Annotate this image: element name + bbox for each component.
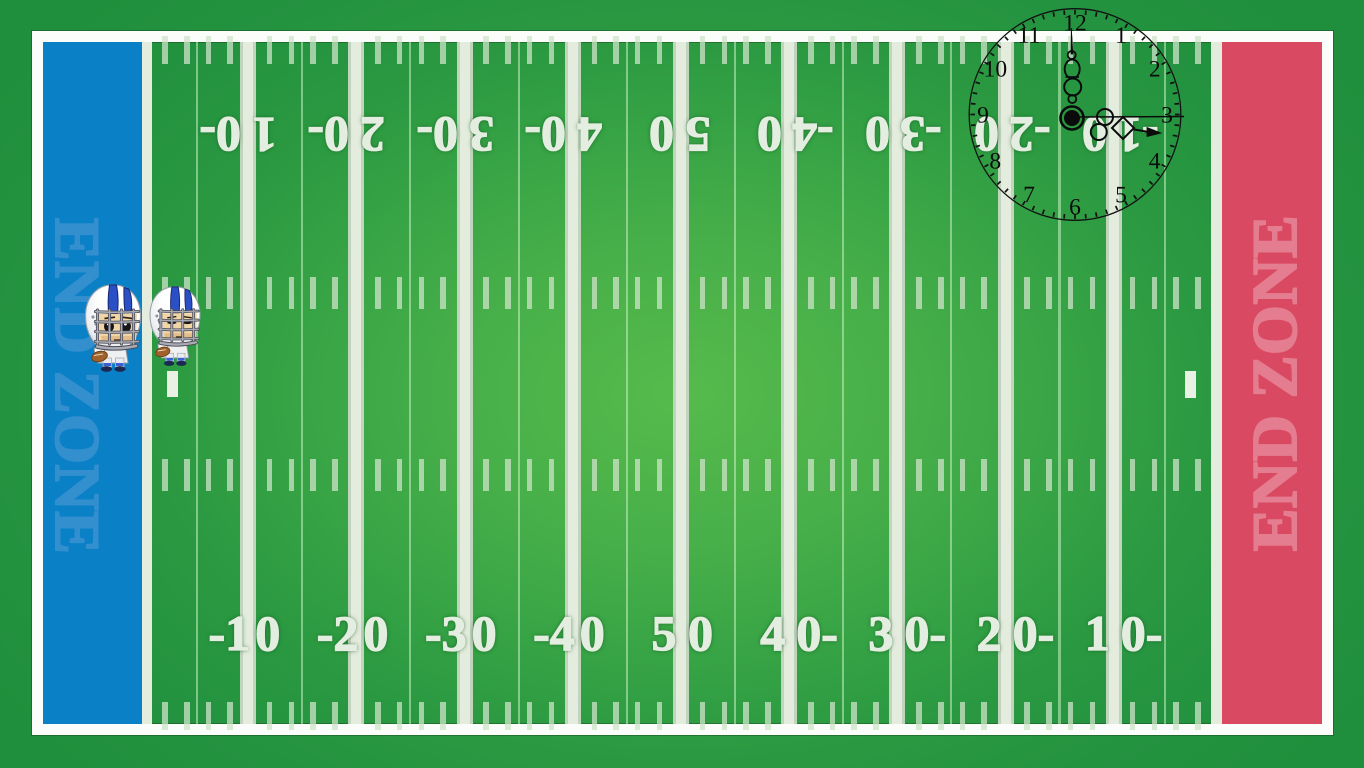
svg-text:10: 10 (984, 56, 1008, 82)
svg-text:4: 4 (1149, 149, 1161, 175)
svg-text:2: 2 (1149, 57, 1161, 83)
svg-text:7: 7 (1023, 182, 1035, 208)
svg-text:3: 3 (1161, 103, 1173, 129)
svg-text:5: 5 (1115, 182, 1127, 208)
svg-text:8: 8 (989, 148, 1001, 174)
svg-text:12: 12 (1063, 10, 1087, 36)
svg-text:11: 11 (1018, 23, 1041, 49)
svg-text:6: 6 (1069, 194, 1081, 220)
svg-text:1: 1 (1115, 23, 1127, 49)
svg-text:9: 9 (977, 102, 989, 128)
